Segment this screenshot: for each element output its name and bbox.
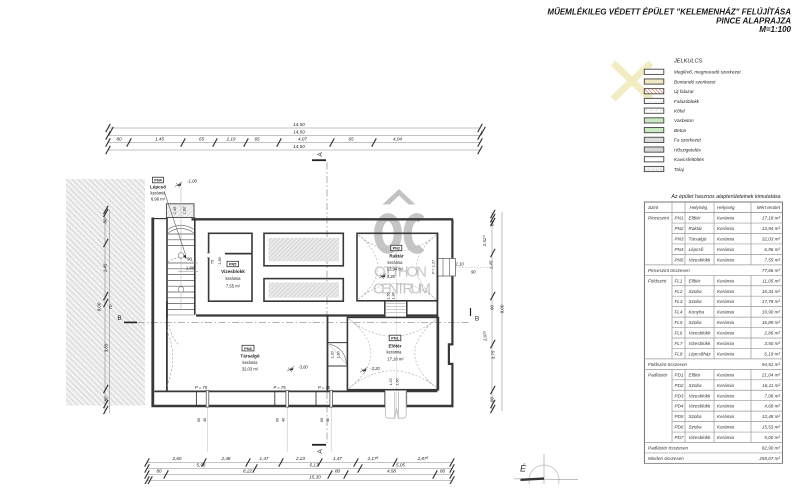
svg-text:kerámia: kerámia <box>151 191 167 196</box>
svg-text:1,50: 1,50 <box>387 293 391 300</box>
svg-text:Előtér: Előtér <box>689 372 701 377</box>
svg-text:Szoba: Szoba <box>689 383 702 388</box>
svg-text:8,22: 8,22 <box>243 468 252 473</box>
svg-text:-1,00: -1,00 <box>187 179 198 184</box>
svg-text:B: B <box>117 315 121 322</box>
svg-text:1,47: 1,47 <box>260 456 269 461</box>
svg-text:5,98: 5,98 <box>197 462 206 467</box>
svg-text:1,20: 1,20 <box>331 352 335 359</box>
svg-text:Kerámia: Kerámia <box>717 425 735 430</box>
svg-text:Kerámia: Kerámia <box>717 331 735 336</box>
svg-text:4,68 m²: 4,68 m² <box>764 404 780 409</box>
svg-text:5,00 m²: 5,00 m² <box>764 435 780 440</box>
svg-text:kerámia: kerámia <box>226 276 242 281</box>
svg-text:PD1: PD1 <box>675 372 684 377</box>
svg-text:Helyiség: Helyiség <box>717 205 735 210</box>
svg-text:Kerámia: Kerámia <box>717 393 735 398</box>
svg-text:255,07 m²: 255,07 m² <box>758 456 780 461</box>
svg-text:1,80: 1,80 <box>186 266 195 271</box>
svg-text:Bontandó szerkezet: Bontandó szerkezet <box>674 79 716 84</box>
svg-text:1,80: 1,80 <box>218 256 222 264</box>
svg-text:Az épület hasznos alapterülete: Az épület hasznos alapterületeinek kimut… <box>670 194 780 200</box>
svg-text:82,90 m²: 82,90 m² <box>762 446 781 451</box>
svg-text:Mért terület: Mért terület <box>757 205 781 210</box>
svg-text:Vizesblokk: Vizesblokk <box>689 331 712 336</box>
svg-text:1,10: 1,10 <box>456 262 465 267</box>
svg-text:90: 90 <box>471 270 476 275</box>
svg-text:Kavicsfeltöltés: Kavicsfeltöltés <box>674 157 705 162</box>
svg-text:2,23: 2,23 <box>295 456 305 461</box>
svg-text:Vasbeton: Vasbeton <box>674 118 694 123</box>
svg-text:90: 90 <box>187 257 192 262</box>
svg-text:kerámia: kerámia <box>387 350 403 355</box>
svg-text:Vizesblokk: Vizesblokk <box>221 269 245 274</box>
svg-text:Előtér: Előtér <box>388 343 401 348</box>
svg-text:77,66 m²: 77,66 m² <box>762 268 781 273</box>
svg-text:FL4: FL4 <box>675 310 683 315</box>
svg-text:Minden összesen: Minden összesen <box>648 456 684 461</box>
svg-text:2,87⁵: 2,87⁵ <box>417 456 429 461</box>
svg-text:80: 80 <box>335 468 341 473</box>
svg-text:2,86 m²: 2,86 m² <box>763 331 780 336</box>
svg-text:8,00: 8,00 <box>500 304 505 313</box>
svg-text:94,51 m²: 94,51 m² <box>762 362 781 367</box>
svg-text:FL5: FL5 <box>675 320 683 325</box>
svg-text:1,90: 1,90 <box>337 352 341 359</box>
svg-text:5,05: 5,05 <box>396 462 405 467</box>
svg-text:PN2: PN2 <box>393 247 400 251</box>
svg-text:Lépcső: Lépcső <box>150 185 166 190</box>
svg-text:21,04 m²: 21,04 m² <box>761 372 781 377</box>
svg-text:Kerámia: Kerámia <box>717 226 735 231</box>
svg-text:Szoba: Szoba <box>689 414 702 419</box>
svg-text:P = 75: P = 75 <box>195 385 208 390</box>
svg-text:65: 65 <box>199 137 205 142</box>
svg-text:Vizesblokk: Vizesblokk <box>689 435 712 440</box>
svg-text:Kerámia: Kerámia <box>717 372 735 377</box>
svg-text:Beton: Beton <box>674 128 687 133</box>
svg-text:70: 70 <box>108 304 113 309</box>
svg-text:1,45: 1,45 <box>155 137 164 142</box>
svg-text:Szint: Szint <box>648 205 659 210</box>
svg-text:-3,20: -3,20 <box>370 366 380 371</box>
svg-text:PN2: PN2 <box>675 226 684 231</box>
svg-text:FL2: FL2 <box>675 289 683 294</box>
svg-text:14,50: 14,50 <box>293 130 305 135</box>
svg-text:Kerámia: Kerámia <box>717 351 735 356</box>
svg-text:7,55 m²: 7,55 m² <box>764 257 780 262</box>
svg-text:PD6: PD6 <box>675 425 684 430</box>
svg-text:32,03 m²: 32,03 m² <box>242 366 259 371</box>
svg-text:JELKULCS: JELKULCS <box>673 59 703 65</box>
svg-text:17,18 m²: 17,18 m² <box>762 216 781 221</box>
svg-text:Kerámia: Kerámia <box>717 237 735 242</box>
svg-text:CENTRUM: CENTRUM <box>373 281 431 298</box>
svg-text:Szoba: Szoba <box>689 299 702 304</box>
svg-text:PD3: PD3 <box>675 393 684 398</box>
svg-text:Lépcsőház: Lépcsőház <box>689 351 712 356</box>
svg-text:3,85: 3,85 <box>103 343 108 352</box>
svg-text:15,53 m²: 15,53 m² <box>762 425 781 430</box>
svg-text:Kerámia: Kerámia <box>717 320 735 325</box>
svg-text:16,34 m²: 16,34 m² <box>762 289 781 294</box>
svg-text:1,45: 1,45 <box>488 260 493 269</box>
svg-text:4,58: 4,58 <box>387 468 396 473</box>
svg-text:7,55 m²: 7,55 m² <box>226 284 241 289</box>
svg-text:Előtér: Előtér <box>689 278 701 283</box>
svg-text:P = 75: P = 75 <box>318 385 331 390</box>
svg-text:PN4: PN4 <box>675 247 684 252</box>
svg-text:2,52⁰: 2,52⁰ <box>482 235 487 248</box>
svg-text:11,05 m²: 11,05 m² <box>762 278 780 283</box>
svg-text:PN3: PN3 <box>675 237 684 242</box>
svg-text:14,50: 14,50 <box>293 122 305 127</box>
svg-text:A: A <box>317 152 324 157</box>
svg-text:65: 65 <box>348 137 354 142</box>
svg-text:Raktár: Raktár <box>389 253 404 258</box>
svg-text:13,48 m²: 13,48 m² <box>762 414 781 419</box>
svg-text:P = 1,27: P = 1,27 <box>432 259 436 274</box>
svg-text:FL6: FL6 <box>675 331 683 336</box>
svg-text:6,96 m²: 6,96 m² <box>151 197 166 202</box>
svg-text:1,80: 1,80 <box>183 206 187 214</box>
svg-text:1,98: 1,98 <box>392 293 396 300</box>
svg-text:Kerámia: Kerámia <box>717 247 735 252</box>
svg-text:Padlástér: Padlástér <box>648 372 668 377</box>
svg-text:16,89 m²: 16,89 m² <box>762 320 781 325</box>
svg-text:8,00: 8,00 <box>97 302 102 311</box>
svg-text:Kerámia: Kerámia <box>717 257 735 262</box>
svg-text:Meglévő, megmaradó szerkezet: Meglévő, megmaradó szerkezet <box>674 70 741 75</box>
svg-text:Kőfal: Kőfal <box>674 108 686 113</box>
svg-text:Vizesblokk: Vizesblokk <box>689 404 712 409</box>
svg-text:É: É <box>520 464 527 474</box>
svg-text:2,60: 2,60 <box>172 456 182 461</box>
svg-text:Talaj: Talaj <box>674 167 685 172</box>
svg-text:FL8: FL8 <box>675 351 683 356</box>
svg-text:3,75: 3,75 <box>490 350 495 359</box>
svg-text:PN1: PN1 <box>675 216 684 221</box>
svg-text:Szoba: Szoba <box>689 320 702 325</box>
svg-text:2,19: 2,19 <box>226 137 236 142</box>
svg-text:1,07⁵: 1,07⁵ <box>482 331 487 342</box>
svg-text:PN4: PN4 <box>154 179 162 183</box>
svg-text:Szoba: Szoba <box>689 289 702 294</box>
svg-text:FL3: FL3 <box>675 299 683 304</box>
svg-text:2,48: 2,48 <box>221 456 231 461</box>
svg-text:PD5: PD5 <box>675 414 684 419</box>
svg-text:Pinceszint: Pinceszint <box>648 216 670 221</box>
svg-text:Vizesblokk: Vizesblokk <box>689 257 712 262</box>
svg-text:65: 65 <box>254 137 260 142</box>
svg-text:Konyha: Konyha <box>689 310 705 315</box>
svg-text:6,19 m²: 6,19 m² <box>764 351 780 356</box>
svg-text:Kerámia: Kerámia <box>717 414 735 419</box>
svg-text:4,04: 4,04 <box>393 137 402 142</box>
svg-text:80: 80 <box>489 397 494 402</box>
svg-text:1,45: 1,45 <box>102 263 107 272</box>
svg-text:1,45: 1,45 <box>173 206 177 214</box>
svg-text:kerámia: kerámia <box>388 260 404 265</box>
svg-text:32,03 m²: 32,03 m² <box>762 237 781 242</box>
svg-text:80: 80 <box>440 468 446 473</box>
svg-text:Kerámia: Kerámia <box>717 435 735 440</box>
svg-text:80: 80 <box>102 218 107 223</box>
svg-text:Vizesblokk: Vizesblokk <box>689 341 712 346</box>
svg-text:Társalgó: Társalgó <box>240 353 259 358</box>
svg-text:17,18 m²: 17,18 m² <box>387 357 404 362</box>
svg-text:Hőszigetelés: Hőszigetelés <box>674 147 701 152</box>
svg-text:1,60: 1,60 <box>396 379 400 386</box>
svg-text:Földszint: Földszint <box>648 278 667 283</box>
svg-text:PN5: PN5 <box>675 257 684 262</box>
svg-text:Kerámia: Kerámia <box>717 216 735 221</box>
svg-text:PD4: PD4 <box>675 404 684 409</box>
svg-text:B: B <box>475 316 479 323</box>
svg-text:FL7: FL7 <box>675 341 683 346</box>
svg-text:17,78 m²: 17,78 m² <box>762 299 781 304</box>
svg-text:A: A <box>317 449 324 454</box>
svg-text:Pinceszint összesen: Pinceszint összesen <box>648 268 690 273</box>
svg-text:Raktár: Raktár <box>689 226 703 231</box>
svg-text:M=1:100: M=1:100 <box>759 25 791 34</box>
svg-text:Kerámia: Kerámia <box>717 278 735 283</box>
svg-text:80: 80 <box>489 305 494 310</box>
svg-text:PN5: PN5 <box>229 263 236 267</box>
svg-text:13,94 m²: 13,94 m² <box>387 267 404 272</box>
svg-text:Vizesblokk: Vizesblokk <box>689 393 712 398</box>
svg-text:3,50 m²: 3,50 m² <box>764 341 780 346</box>
svg-text:MŰEMLÉKILEG VÉDETT ÉPÜLET "KEL: MŰEMLÉKILEG VÉDETT ÉPÜLET "KELEMENHÁZ" F… <box>547 8 791 17</box>
svg-text:19,90 m²: 19,90 m² <box>762 310 781 315</box>
svg-text:Előtér: Előtér <box>689 216 701 221</box>
svg-text:Szoba: Szoba <box>689 425 702 430</box>
svg-text:Kerámia: Kerámia <box>717 289 735 294</box>
svg-text:1,47: 1,47 <box>333 456 342 461</box>
svg-text:2,17⁵: 2,17⁵ <box>367 456 379 461</box>
svg-text:Falazóblokk: Falazóblokk <box>674 99 700 104</box>
svg-text:Új falazat: Új falazat <box>674 88 694 94</box>
svg-text:-3,35: -3,35 <box>385 274 395 279</box>
svg-text:Kerámia: Kerámia <box>717 310 735 315</box>
svg-text:P = 75: P = 75 <box>273 385 286 390</box>
svg-text:PD7: PD7 <box>675 435 684 440</box>
svg-text:Földszint összesen: Földszint összesen <box>648 362 688 367</box>
svg-text:PN3: PN3 <box>244 347 251 351</box>
svg-text:80: 80 <box>156 468 162 473</box>
svg-text:7,08 m²: 7,08 m² <box>764 393 780 398</box>
svg-text:6,96 m²: 6,96 m² <box>764 247 780 252</box>
svg-text:14,50: 14,50 <box>293 144 305 149</box>
svg-text:Fa szerkezet: Fa szerkezet <box>674 138 702 143</box>
svg-text:PD2: PD2 <box>675 383 684 388</box>
svg-text:Lépcső: Lépcső <box>689 247 704 252</box>
svg-text:80: 80 <box>116 137 122 142</box>
svg-text:FL1: FL1 <box>675 278 683 283</box>
svg-text:-3,60: -3,60 <box>298 365 308 370</box>
svg-text:1,23: 1,23 <box>389 379 393 386</box>
svg-text:Helyiség: Helyiség <box>690 205 708 210</box>
svg-text:kerámia: kerámia <box>243 360 259 365</box>
svg-text:Kerámia: Kerámia <box>717 299 735 304</box>
svg-text:Kerámia: Kerámia <box>717 404 735 409</box>
svg-text:16,11 m²: 16,11 m² <box>762 383 780 388</box>
svg-text:Kerámia: Kerámia <box>717 383 735 388</box>
svg-text:13,94 m²: 13,94 m² <box>762 226 781 231</box>
svg-text:PN1: PN1 <box>391 337 398 341</box>
svg-text:4,07: 4,07 <box>298 137 307 142</box>
svg-text:Társalgó: Társalgó <box>689 237 707 242</box>
svg-text:15,30: 15,30 <box>309 475 321 480</box>
svg-text:Padlástér összesen: Padlástér összesen <box>648 446 689 451</box>
svg-text:Kerámia: Kerámia <box>717 341 735 346</box>
